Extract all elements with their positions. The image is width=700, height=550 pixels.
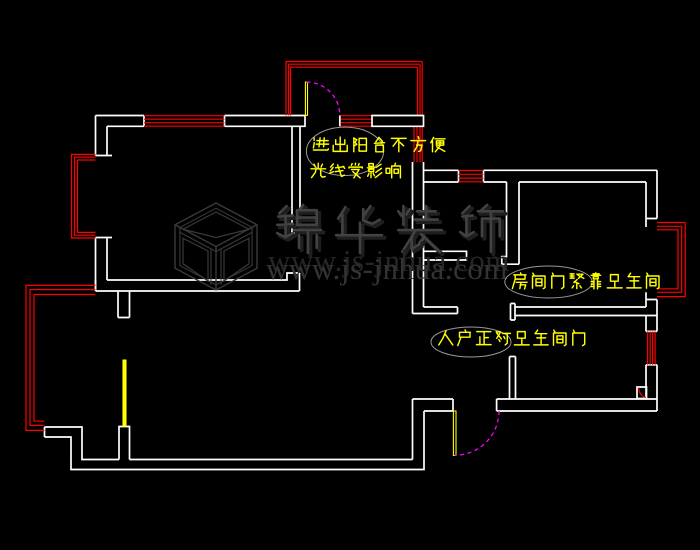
svg-text:www.js-jnhua.com: www.js-jnhua.com [266, 251, 508, 286]
